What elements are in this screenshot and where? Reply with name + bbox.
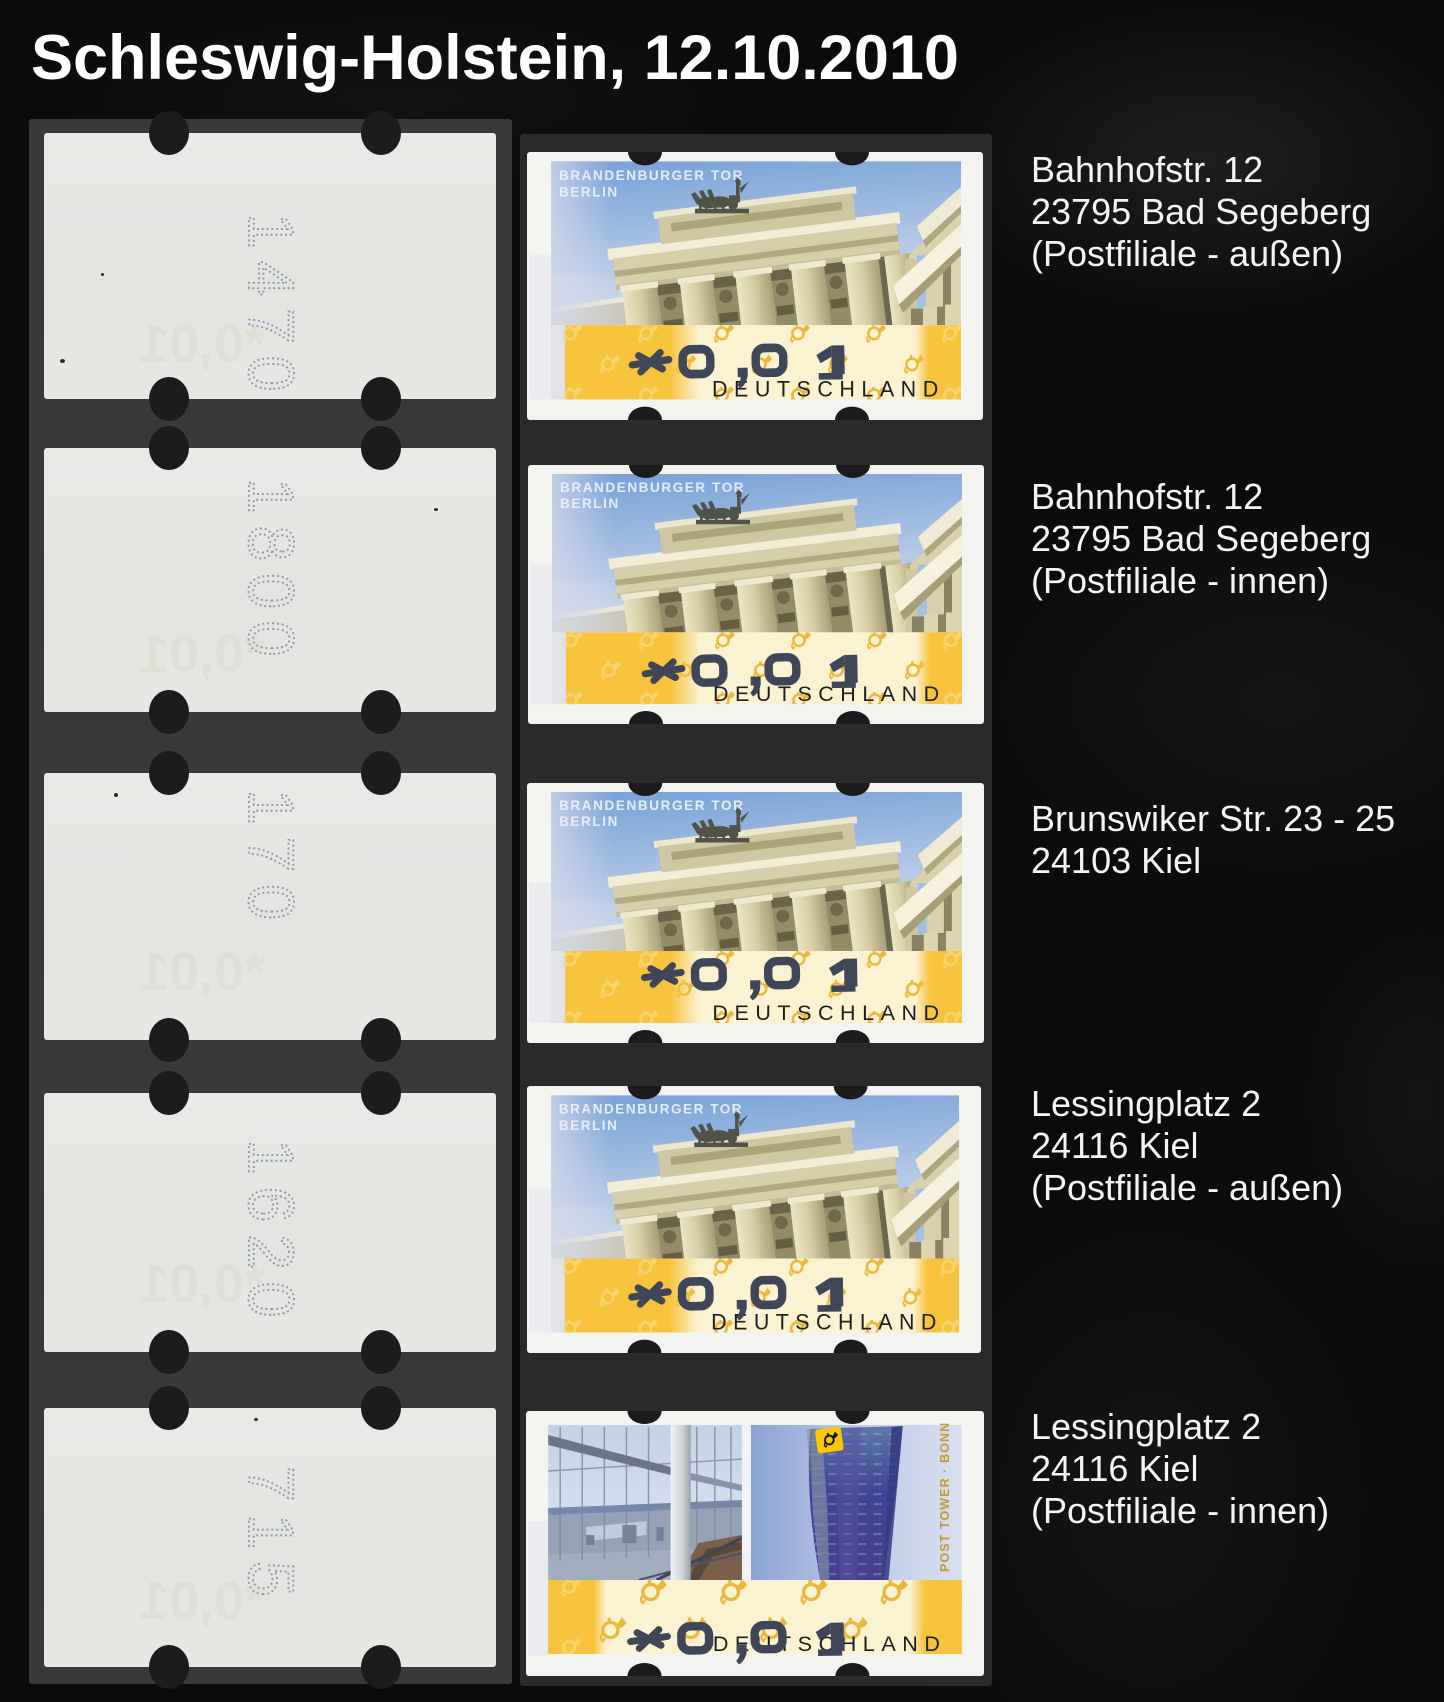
svg-text:170: 170 [235, 789, 307, 932]
